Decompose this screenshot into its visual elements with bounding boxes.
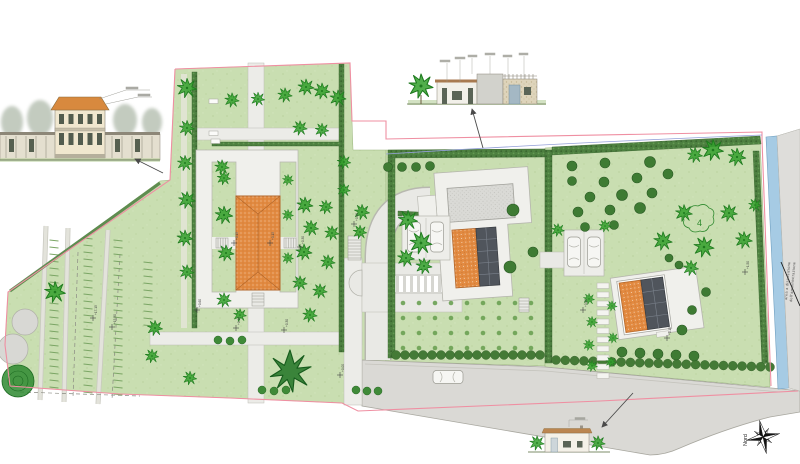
- shrub-dot-icon: [433, 301, 438, 306]
- shrub-dot-icon: [465, 331, 470, 336]
- tree-icon: [635, 203, 646, 214]
- round-paved-circle: [12, 309, 38, 335]
- tree-icon: [617, 347, 627, 357]
- elevation-marker-label: +15.50: [113, 314, 117, 324]
- hedge-shrub-icon: [455, 351, 464, 360]
- villa-balcony: [55, 128, 105, 131]
- stepping-stone: [597, 373, 609, 379]
- tree-icon: [504, 261, 516, 273]
- shrub-dot-icon: [465, 316, 470, 321]
- site-plan-canvas: area a disposizione dell'amministrazione: [0, 0, 800, 464]
- shrub-dot-icon: [513, 346, 518, 351]
- small-house-window: [563, 441, 571, 448]
- stepping-stone: [597, 337, 609, 343]
- car-icon: [431, 222, 444, 252]
- hedge-shrub-icon: [710, 361, 719, 370]
- hedge-shrub-icon: [728, 361, 737, 370]
- planting-row-tick: [50, 240, 59, 241]
- stepping-stone: [597, 355, 609, 361]
- shrub-dot-icon: [401, 331, 406, 336]
- shrub-dot-icon: [513, 316, 518, 321]
- tree-icon: [610, 221, 619, 230]
- elevation-marker-label: +0.15: [271, 232, 275, 240]
- hedge-shrub-icon: [570, 356, 579, 365]
- stepping-stone: [597, 328, 609, 334]
- middle-building-canopy: [418, 195, 437, 218]
- north-label: Nord: [743, 434, 749, 446]
- shrub-dot-icon: [513, 301, 518, 306]
- hedge-shrub-icon: [446, 351, 455, 360]
- parking-connector-path: [540, 252, 566, 268]
- stair-flight: [348, 236, 361, 260]
- elevation-marker-label: +0.45: [355, 213, 359, 221]
- hedge-shrub-icon: [527, 351, 536, 360]
- hedge-mid-top: [388, 149, 545, 158]
- tree-icon: [663, 169, 673, 179]
- tree-icon: [567, 161, 577, 171]
- car-icon: [568, 237, 581, 267]
- small-house-roof: [542, 429, 592, 434]
- hedge-west-garden-right: [339, 64, 344, 352]
- hedge-shrub-icon: [645, 359, 654, 368]
- stone-window: [524, 87, 531, 95]
- elevation-marker-label: +0.60: [198, 299, 202, 307]
- hedge-shrub-icon: [536, 351, 545, 360]
- shrub-dot-icon: [417, 301, 422, 306]
- hedge-shrub-icon: [579, 356, 588, 365]
- elevation-marker-label: +0.30: [301, 236, 305, 244]
- shrub-dot-icon: [433, 331, 438, 336]
- hedge-shrub-icon: [500, 351, 509, 360]
- shrub-dot-icon: [481, 331, 486, 336]
- middle-building-tile-roof: [452, 228, 480, 288]
- hedge-shrub-icon: [756, 362, 765, 371]
- annotation-leaders: [99, 87, 152, 104]
- round-paved-circle: [0, 334, 28, 364]
- house-roofband: [435, 80, 479, 83]
- tree-icon: [409, 74, 433, 98]
- site-plan-svg: area a disposizione dell'amministrazione: [0, 0, 800, 464]
- shrub-dot-icon: [497, 346, 502, 351]
- shrub-icon: [363, 387, 371, 395]
- tree-icon: [412, 163, 421, 172]
- tree-icon: [675, 261, 683, 269]
- shrub-dot-icon: [401, 346, 406, 351]
- tree-icon: [665, 254, 673, 262]
- shrub-icon: [238, 336, 246, 344]
- hedge-shrub-icon: [428, 351, 437, 360]
- elevation-marker-label: +0.30: [285, 319, 289, 327]
- stepping-stone: [597, 346, 609, 352]
- hedge-shrub-icon: [518, 351, 527, 360]
- shrub-dot-icon: [529, 331, 534, 336]
- tree-icon: [677, 325, 687, 335]
- shrub-dot-icon: [529, 346, 534, 351]
- bench: [211, 139, 220, 144]
- elevation-marker-label: +0.15: [668, 327, 672, 335]
- elevation-marker-label: +0.15: [235, 232, 239, 240]
- tree-icon: [645, 157, 656, 168]
- middle-building-gravel-roof: [447, 184, 515, 223]
- small-house-window: [577, 441, 583, 448]
- hedge-shrub-icon: [672, 359, 681, 368]
- shrub-icon: [270, 387, 278, 395]
- tree-icon: [671, 350, 681, 360]
- villa-base: [55, 154, 105, 158]
- elevation-marker-label: +0.00: [341, 364, 345, 372]
- shrub-dot-icon: [481, 346, 486, 351]
- hedge-shrub-icon: [437, 351, 446, 360]
- tree-icon: [688, 306, 697, 315]
- stepping-stone: [597, 310, 609, 316]
- planting-row-tick: [50, 247, 59, 248]
- villa-roof: [51, 97, 109, 110]
- shrub-dot-icon: [433, 316, 438, 321]
- shrub-dot-icon: [417, 331, 422, 336]
- tree-icon: [573, 207, 583, 217]
- tree-icon: [568, 177, 577, 186]
- tree-icon: [398, 163, 407, 172]
- shrub-dot-icon: [465, 346, 470, 351]
- shrub-dot-icon: [529, 316, 534, 321]
- hedge-shrub-icon: [401, 351, 410, 360]
- cross-path-south: [150, 332, 362, 345]
- shrub-dot-icon: [465, 301, 470, 306]
- hedge-mid-west: [388, 158, 395, 358]
- hedge-shrub-icon: [392, 351, 401, 360]
- hedge-shrub-icon: [663, 359, 672, 368]
- large-tree-circle: [2, 365, 34, 397]
- hedge-shrub-icon: [635, 358, 644, 367]
- tree-icon: [581, 223, 590, 232]
- stair-flight: [519, 298, 529, 312]
- hedge-shrub-icon: [491, 351, 500, 360]
- tree-icon: [507, 204, 519, 216]
- hedge-shrub-icon: [473, 351, 482, 360]
- stepping-stone: [597, 283, 609, 289]
- hedge-shrub-icon: [482, 351, 491, 360]
- house-parapet: [477, 74, 503, 104]
- elevation-marker-label: +0.15: [237, 317, 241, 325]
- hedge-shrub-icon: [691, 360, 700, 369]
- hedge-shrub-icon: [552, 356, 561, 365]
- tree-icon: [384, 163, 393, 172]
- shrub-icon: [258, 386, 266, 394]
- tree-icon: [653, 349, 663, 359]
- shrub-dot-icon: [449, 331, 454, 336]
- tree-icon: [426, 162, 435, 171]
- shrub-dot-icon: [481, 316, 486, 321]
- hedge-shrub-icon: [738, 362, 747, 371]
- shrub-dot-icon: [497, 316, 502, 321]
- small-house-chimney: [580, 426, 583, 429]
- hedge-shrub-icon: [747, 362, 756, 371]
- shrub-icon: [282, 386, 290, 394]
- tree-icon: [585, 192, 595, 202]
- elevation-marker-label: +1.50: [746, 261, 750, 269]
- tree-icon: [617, 190, 628, 201]
- shrub-dot-icon: [417, 346, 422, 351]
- shrub-dot-icon: [529, 301, 534, 306]
- shrub-icon: [374, 387, 382, 395]
- bench: [209, 131, 218, 136]
- hedge-shrub-icon: [464, 351, 473, 360]
- hedge-shrub-icon: [561, 356, 570, 365]
- shrub-icon: [352, 386, 360, 394]
- tree-icon: [635, 348, 645, 358]
- tree-icon: [702, 288, 711, 297]
- stair-flight: [284, 238, 296, 248]
- shrub-dot-icon: [449, 301, 454, 306]
- shrub-dot-icon: [449, 346, 454, 351]
- hedge-shrub-icon: [719, 361, 728, 370]
- parking-east: [564, 230, 604, 276]
- tree-icon: [600, 158, 610, 168]
- stepping-stone: [597, 292, 609, 298]
- shrub-dot-icon: [401, 316, 406, 321]
- tree-icon: [632, 173, 642, 183]
- hedge-shrub-icon: [617, 358, 626, 367]
- shrub-icon: [214, 336, 222, 344]
- tree-icon: [530, 436, 544, 450]
- hedge-shrub-icon: [509, 351, 518, 360]
- small-house-door: [551, 438, 558, 452]
- shrub-dot-icon: [417, 316, 422, 321]
- tree-icon: [689, 351, 699, 361]
- stair-flight: [252, 293, 264, 306]
- stepping-stone: [597, 301, 609, 307]
- shrub-dot-icon: [401, 301, 406, 306]
- shrub-dot-icon: [497, 301, 502, 306]
- shrub-dot-icon: [497, 331, 502, 336]
- elevation-marker-label: +0.00: [584, 299, 588, 307]
- hedge-shrub-icon: [410, 351, 419, 360]
- crosswalk: [390, 274, 448, 294]
- planting-row-tick: [50, 254, 59, 255]
- tree-icon: [599, 177, 609, 187]
- hedge-shrub-icon: [419, 351, 428, 360]
- hedge-shrub-icon: [626, 358, 635, 367]
- hedge-shrub-icon: [700, 360, 709, 369]
- tree-count-label: 4: [697, 218, 702, 228]
- stepping-stone: [597, 319, 609, 325]
- villa-elevation: [0, 87, 162, 162]
- elevation-marker-label: +17.15: [94, 305, 98, 315]
- tree-icon: [647, 188, 657, 198]
- bench: [209, 99, 218, 104]
- glass-door: [509, 85, 520, 104]
- hedge-west-garden-mid: [212, 142, 342, 146]
- tree-icon: [605, 205, 615, 215]
- house-elevation-north: [407, 53, 546, 105]
- hedge-shrub-icon: [654, 359, 663, 368]
- shrub-icon: [226, 337, 234, 345]
- car-icon: [588, 237, 601, 267]
- shrub-dot-icon: [449, 316, 454, 321]
- tree-icon: [528, 247, 538, 257]
- shrub-dot-icon: [433, 346, 438, 351]
- callout-arrow-north-house: [472, 109, 483, 148]
- shrub-dot-icon: [481, 301, 486, 306]
- hedge-shrub-icon: [682, 360, 691, 369]
- car-icon: [433, 371, 463, 384]
- shrub-dot-icon: [513, 331, 518, 336]
